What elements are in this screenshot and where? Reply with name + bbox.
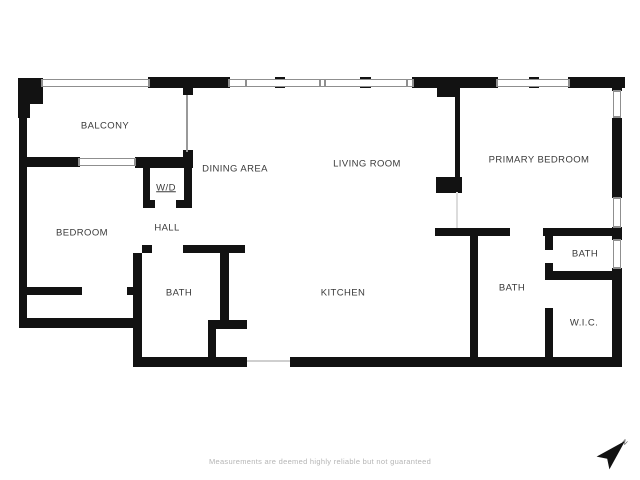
window-mullion [319, 79, 321, 87]
room-label-primary-bedroom: PRIMARY BEDROOM [489, 155, 590, 165]
room-label-kitchen: KITCHEN [321, 288, 366, 298]
window [78, 158, 136, 166]
window-mullion [324, 79, 326, 87]
wall-segment [143, 200, 155, 208]
window-mullion [613, 116, 621, 118]
door-opening [456, 192, 458, 228]
room-label-hall: HALL [154, 223, 179, 233]
wall-segment [18, 78, 30, 118]
door-opening [247, 360, 290, 362]
window-mullion [412, 79, 414, 87]
wall-segment [19, 287, 82, 295]
room-label-dining-area: DINING AREA [202, 164, 268, 174]
window-mullion [613, 90, 621, 92]
wall-segment [19, 116, 27, 328]
wall-segment [183, 245, 245, 253]
wall-segment [142, 245, 152, 253]
wall-segment [545, 271, 617, 280]
wall-segment [208, 320, 216, 362]
window [613, 197, 621, 228]
window-mullion [613, 267, 621, 269]
window-mullion [613, 197, 621, 199]
floor-plan: BALCONYDINING AREALIVING ROOMPRIMARY BED… [0, 0, 640, 480]
window-mullion [613, 226, 621, 228]
room-label-balcony: BALCONY [81, 121, 129, 131]
window-mullion [148, 79, 150, 87]
disclaimer-text: Measurements are deemed highly reliable … [0, 458, 640, 466]
wall-segment [543, 228, 617, 236]
wall-segment [143, 165, 150, 203]
wall-segment [612, 268, 622, 367]
room-label-bath: BATH [166, 288, 192, 298]
wall-segment [19, 318, 142, 328]
room-label-bedroom: BEDROOM [56, 228, 108, 238]
wall-segment [133, 253, 142, 360]
room-label-w-i-c: W.I.C. [570, 318, 598, 328]
room-label-living-room: LIVING ROOM [333, 159, 401, 169]
wall-segment [290, 357, 622, 367]
compass-north-arrow-icon: N [592, 436, 630, 474]
window-mullion [496, 79, 498, 87]
room-label-bath-3: BATH [572, 249, 598, 259]
window [496, 79, 570, 87]
window [41, 79, 150, 87]
window-mullion [228, 79, 230, 87]
window [228, 79, 414, 87]
window-mullion [78, 158, 80, 166]
wall-segment [435, 228, 510, 236]
window-mullion [245, 79, 247, 87]
wall-segment [455, 86, 460, 179]
wall-segment [183, 87, 193, 95]
wall-segment [545, 228, 553, 250]
window-mullion [134, 158, 136, 166]
wall-segment [612, 118, 622, 198]
wall-segment [220, 250, 229, 322]
wall-segment [176, 200, 192, 208]
room-label-bath-2: BATH [499, 283, 525, 293]
wall-segment [133, 357, 247, 367]
wall-segment [127, 287, 135, 295]
room-label-w-d: W/D [156, 183, 176, 193]
window-mullion [568, 79, 570, 87]
window [613, 239, 621, 269]
wall-segment [19, 157, 80, 167]
wall-segment [612, 77, 622, 91]
wall-segment [436, 177, 462, 193]
window-mullion [41, 79, 43, 87]
wall-segment [183, 150, 193, 159]
window-mullion [406, 79, 408, 87]
wall-segment [545, 308, 553, 360]
door-opening [186, 95, 188, 152]
window [613, 90, 621, 118]
window-mullion [613, 239, 621, 241]
wall-segment [470, 236, 478, 360]
